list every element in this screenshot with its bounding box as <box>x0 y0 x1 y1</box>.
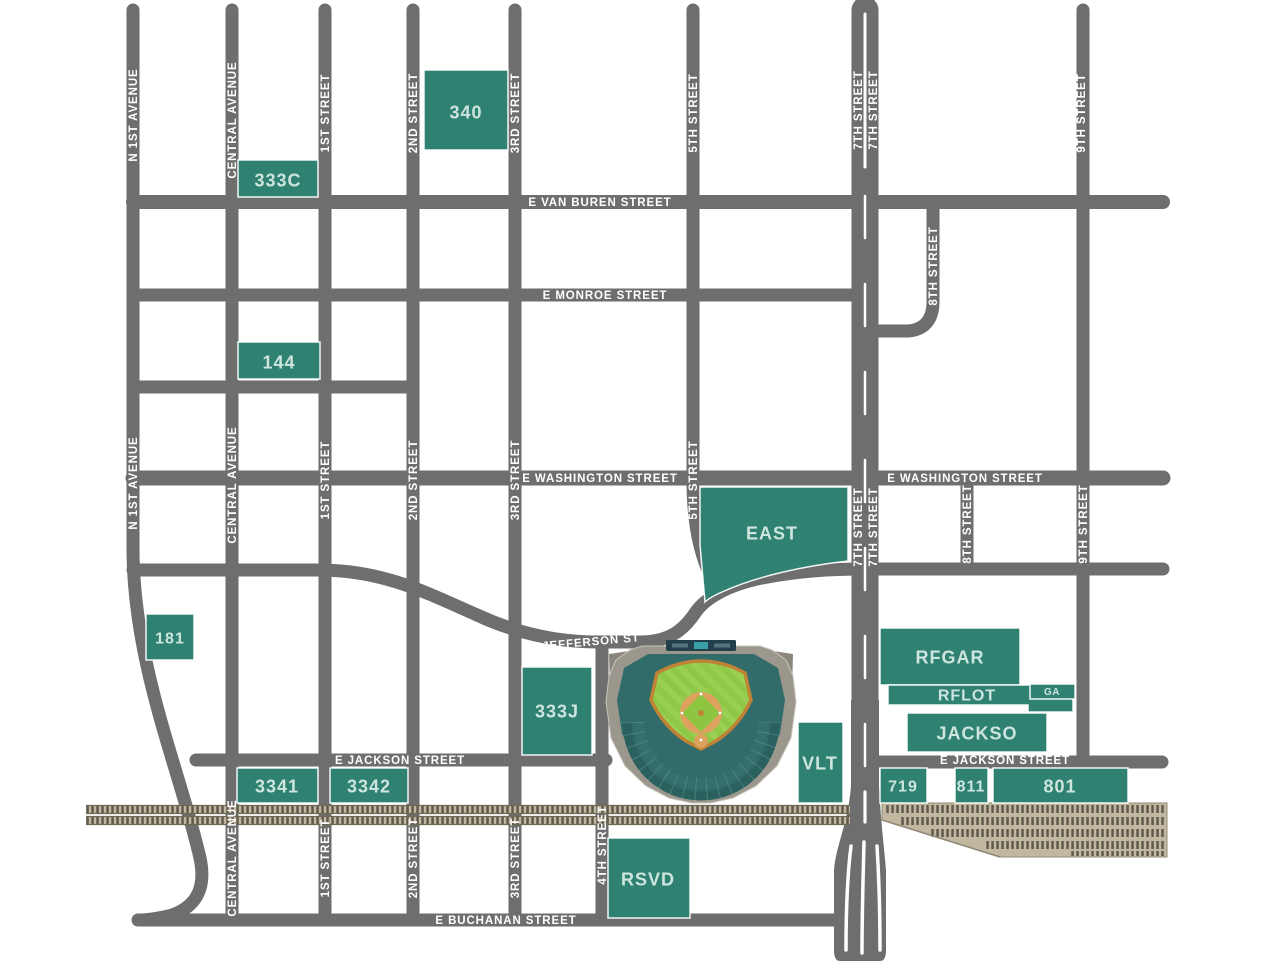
lot-ga[interactable]: GA <box>1030 684 1075 699</box>
railyard <box>882 803 1167 857</box>
lot-340[interactable]: 340 <box>424 70 508 150</box>
lot-144-label: 144 <box>262 352 295 372</box>
street-label-n-1st-avenue-top: N 1ST AVENUE <box>128 68 140 161</box>
lot-rfgar-label: RFGAR <box>916 647 985 667</box>
street-label-5th-mid: 5TH STREET <box>688 440 700 519</box>
street-label-5th-top: 5TH STREET <box>688 73 700 152</box>
street-label-2nd-top: 2ND STREET <box>408 73 420 154</box>
stadium <box>606 640 796 803</box>
street-label-n-1st-avenue-mid: N 1ST AVENUE <box>128 436 140 529</box>
street-label-4th: 4TH STREET <box>597 805 609 884</box>
street-label-2nd-mid: 2ND STREET <box>408 440 420 521</box>
lot-801-label: 801 <box>1043 776 1076 796</box>
street-label-e-washington-west: E WASHINGTON STREET <box>522 473 678 485</box>
street-label-central-mid: CENTRAL AVENUE <box>227 426 239 543</box>
lot-rflot-label: RFLOT <box>938 688 996 705</box>
street-label-9th-mid: 9TH STREET <box>1078 484 1090 563</box>
street-label-e-van-buren: E VAN BUREN STREET <box>528 197 671 209</box>
lot-811[interactable]: 811 <box>955 768 988 803</box>
lot-jackso[interactable]: JACKSO <box>907 713 1047 752</box>
lot-719-label: 719 <box>888 779 918 796</box>
street-label-3rd-top: 3RD STREET <box>510 73 522 154</box>
lot-340-label: 340 <box>449 102 482 122</box>
street-label-e-buchanan: E BUCHANAN STREET <box>435 915 576 927</box>
lot-rsvd[interactable]: RSVD <box>608 838 690 918</box>
street-label-e-jackson-east: E JACKSON STREET <box>940 755 1070 767</box>
street-label-2nd-bottom: 2ND STREET <box>408 818 420 899</box>
street-label-1st-mid: 1ST STREET <box>320 441 332 520</box>
street-label-1st-bottom: 1ST STREET <box>320 819 332 898</box>
lot-3341[interactable]: 3341 <box>237 768 318 803</box>
railroad-main-line <box>86 805 850 825</box>
street-label-3rd-mid: 3RD STREET <box>510 440 522 521</box>
street-label-central-top: CENTRAL AVENUE <box>227 61 239 178</box>
lot-ga-label: GA <box>1044 687 1060 698</box>
street-n-1st-avenue <box>133 10 202 920</box>
lot-333j-label: 333J <box>535 701 579 721</box>
street-label-3rd-bottom: 3RD STREET <box>510 818 522 899</box>
lot-rsvd-label: RSVD <box>621 869 675 889</box>
lot-east-label: EAST <box>746 523 798 543</box>
stadium-pitchers-mound <box>698 710 704 716</box>
lot-333c[interactable]: 333C <box>238 160 318 197</box>
street-label-central-bottom: CENTRAL AVENUE <box>227 799 239 916</box>
lot-181[interactable]: 181 <box>146 614 194 660</box>
street-label-1st-top: 1ST STREET <box>320 74 332 153</box>
street-label-e-jackson-west: E JACKSON STREET <box>335 755 465 767</box>
street-label-7th-top-b: 7TH STREET <box>868 70 880 149</box>
street-label-7th-mid-b: 7TH STREET <box>868 487 880 566</box>
lot-811-label: 811 <box>957 779 986 796</box>
parking-map: 340 333C 144 181 EAST 333J VLT RFGAR <box>0 0 1280 968</box>
lot-801[interactable]: 801 <box>993 768 1128 803</box>
street-label-7th-mid-a: 7TH STREET <box>853 487 865 566</box>
street-label-9th-top: 9TH STREET <box>1076 73 1088 152</box>
street-label-8th-north: 8TH STREET <box>928 226 940 305</box>
lot-181-label: 181 <box>155 631 185 648</box>
lot-vlt-label: VLT <box>802 753 838 773</box>
lot-144[interactable]: 144 <box>238 342 320 379</box>
lot-jackso-label: JACKSO <box>936 723 1017 743</box>
street-label-7th-top-a: 7TH STREET <box>853 70 865 149</box>
street-label-e-washington-east: E WASHINGTON STREET <box>887 473 1043 485</box>
street-label-e-monroe: E MONROE STREET <box>543 290 668 302</box>
lot-vlt[interactable]: VLT <box>798 722 843 803</box>
lot-3341-label: 3341 <box>255 776 299 796</box>
lot-333c-label: 333C <box>254 170 301 190</box>
street-label-8th-south: 8TH STREET <box>962 484 974 563</box>
lot-rfgar[interactable]: RFGAR <box>880 628 1020 685</box>
lot-3342[interactable]: 3342 <box>330 768 408 803</box>
lot-719[interactable]: 719 <box>880 768 927 803</box>
lot-3342-label: 3342 <box>347 776 391 796</box>
lot-333j[interactable]: 333J <box>522 667 592 755</box>
